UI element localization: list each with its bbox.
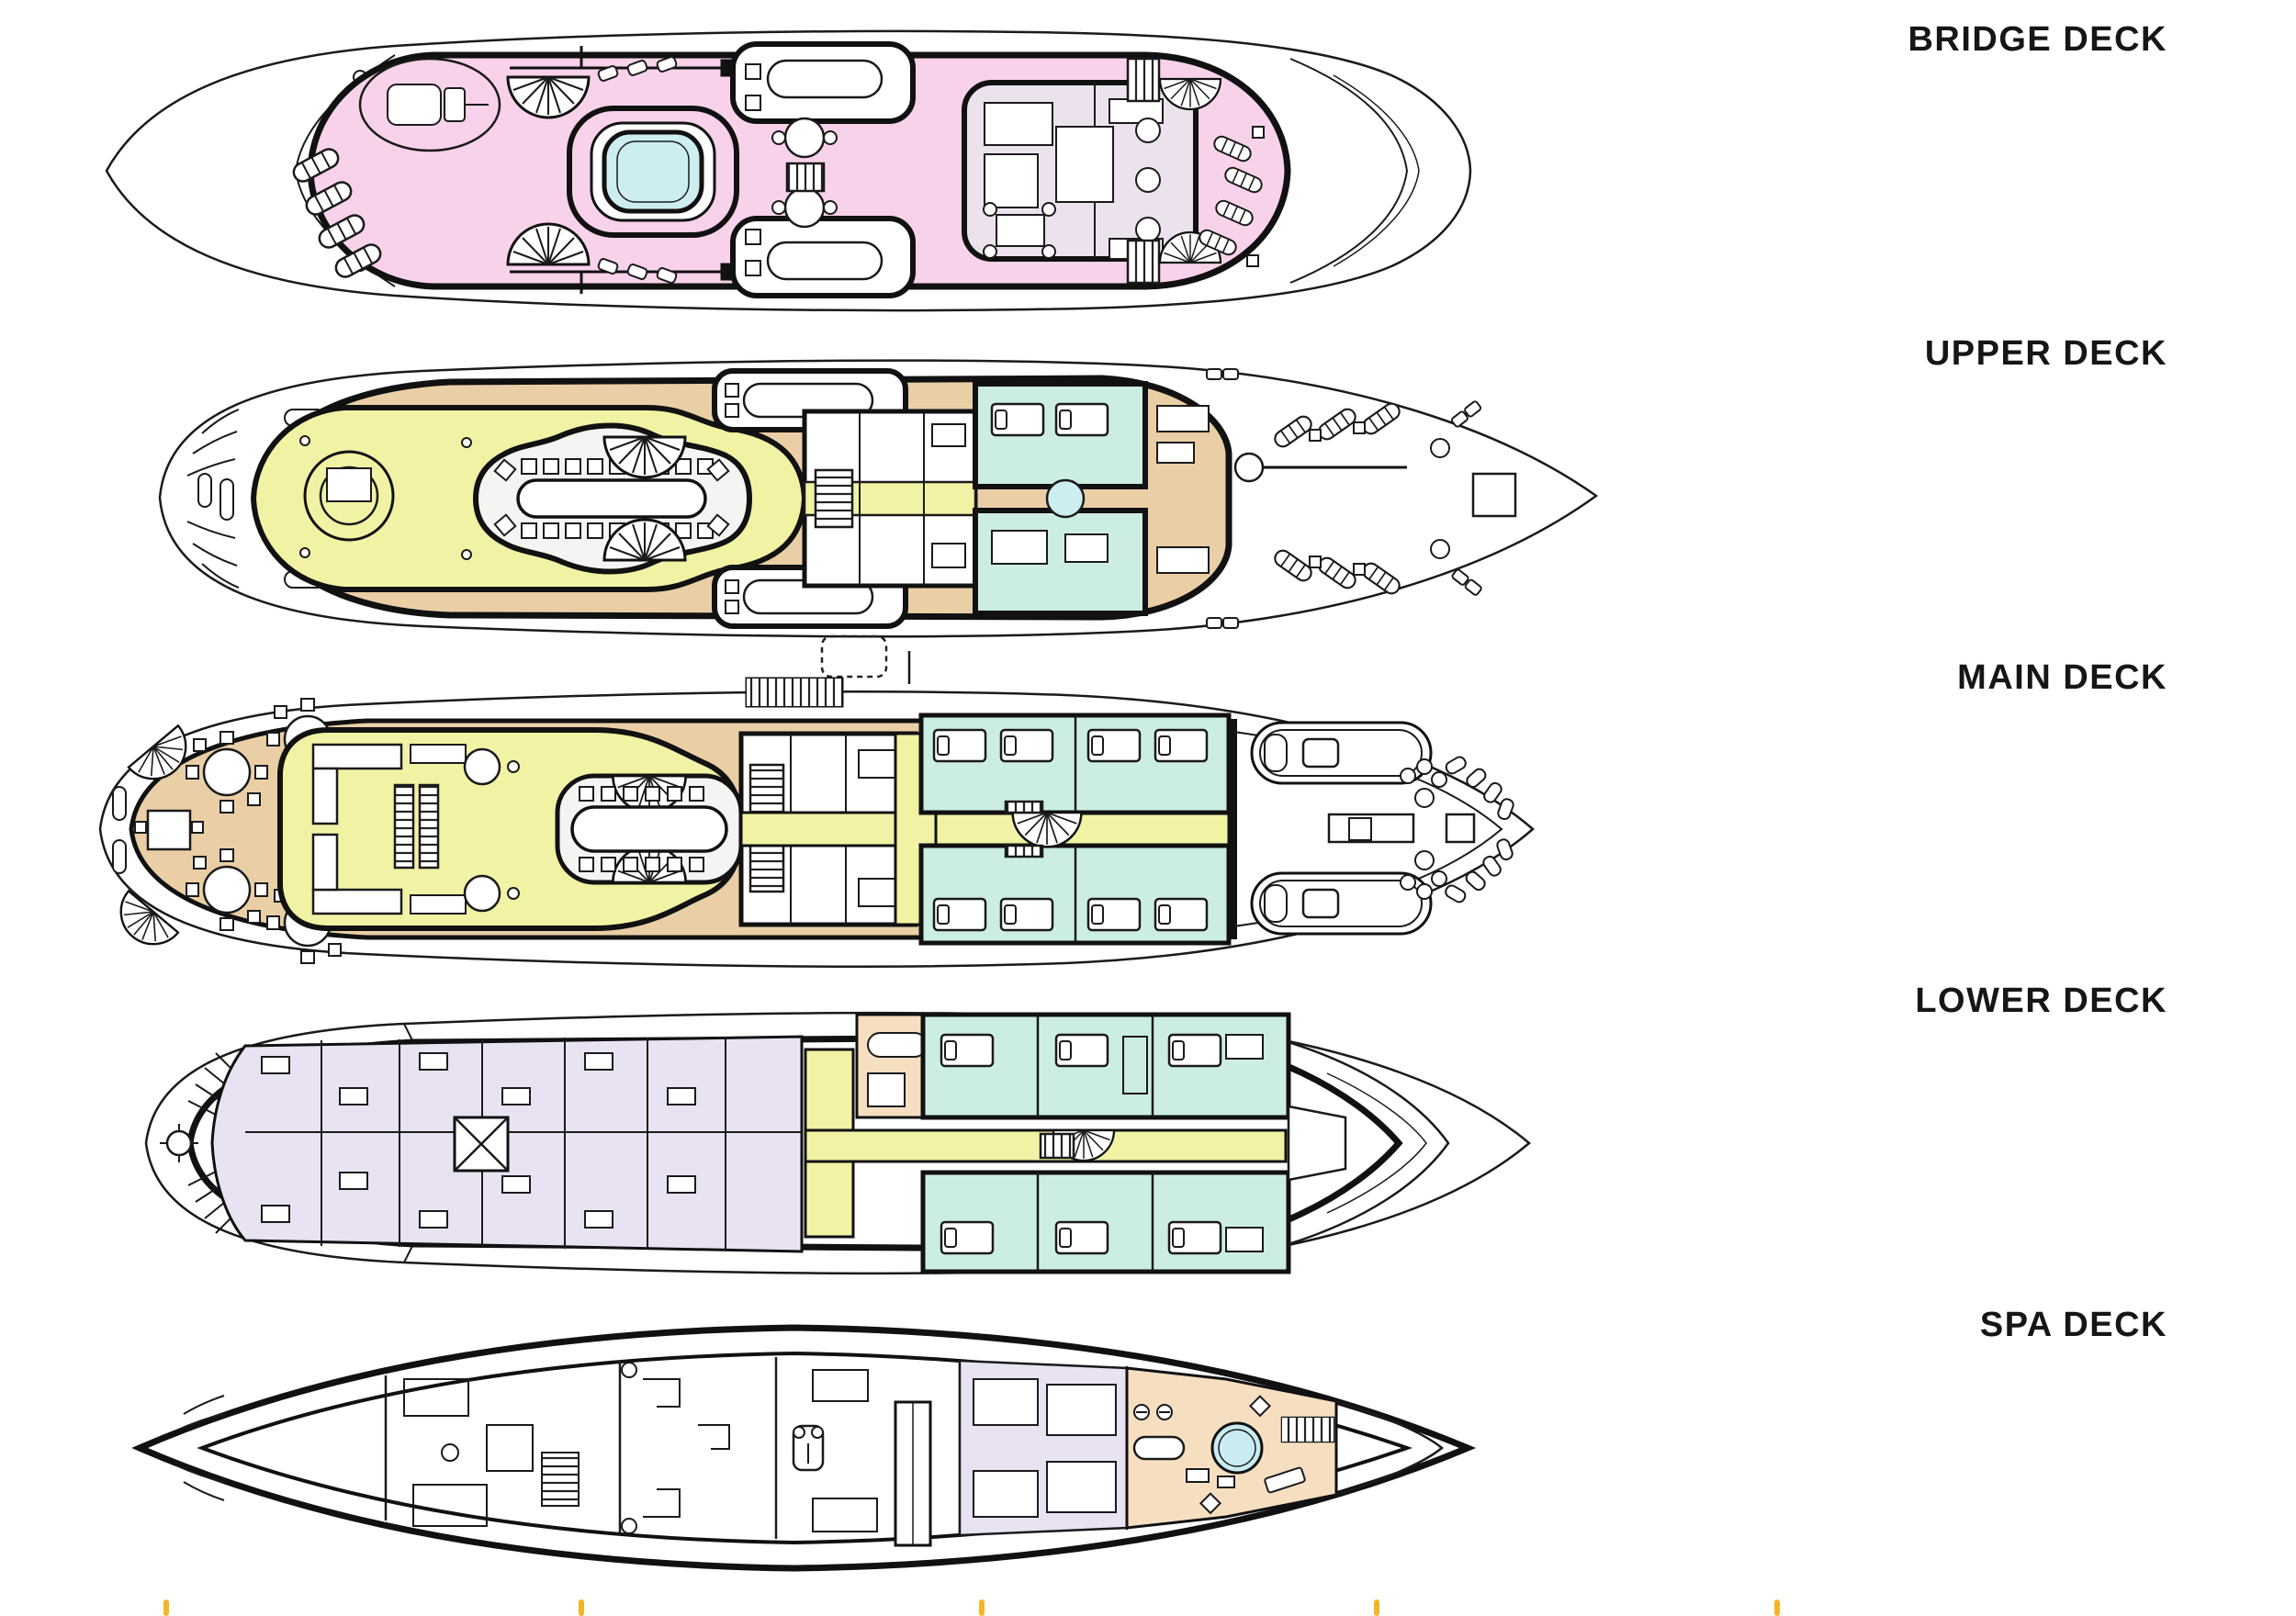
sofa — [1065, 534, 1108, 562]
bridge-deck-plan — [92, 18, 1488, 321]
yacht-deck-plans-page: BRIDGE DECK UPPER DECK MAIN DECK LOWER D… — [0, 0, 2296, 1616]
deck-label-upper: UPPER DECK — [1925, 334, 2167, 374]
deck-label-lower: LOWER DECK — [1915, 982, 2167, 1021]
main-deck-plan — [87, 631, 1557, 980]
deck-label-main: MAIN DECK — [1957, 658, 2167, 698]
upper-deck-plan — [147, 351, 1616, 646]
cabin-bed — [992, 404, 1043, 435]
cabin-bed — [1169, 1222, 1221, 1253]
footer-tick — [1374, 1599, 1379, 1616]
cabin-bed — [1169, 1035, 1221, 1066]
tender-garage-vehicle — [793, 1426, 823, 1470]
sunpad-niche-bottom — [733, 219, 913, 296]
cabin-bed — [941, 1035, 993, 1066]
footer-tick — [979, 1599, 985, 1616]
cabin-bed — [1155, 730, 1207, 761]
stairs — [1128, 241, 1159, 283]
stair-lobby — [805, 411, 975, 586]
funnel-grille — [747, 679, 842, 706]
side-table — [1253, 127, 1264, 138]
cabin-bed — [1001, 899, 1052, 930]
cabin-bed — [1001, 730, 1052, 761]
stairs — [1041, 1134, 1074, 1158]
cleat-pair — [1451, 400, 1482, 428]
deck-label-spa: SPA DECK — [1980, 1306, 2167, 1345]
lower-deck-plan — [133, 996, 1566, 1290]
plunge-pool — [1212, 1423, 1262, 1473]
engine-casing — [895, 1402, 930, 1545]
cabin-bed — [1088, 730, 1140, 761]
cabin-bed — [1056, 1222, 1108, 1253]
cabin-bed — [1056, 1035, 1108, 1066]
cabin-bed — [1088, 899, 1140, 930]
corridor — [741, 813, 1229, 846]
footer-ticks — [156, 1599, 1809, 1616]
deck-label-bridge: BRIDGE DECK — [1908, 20, 2167, 60]
dressing-rooms — [960, 1361, 1127, 1535]
footer-tick — [1774, 1599, 1780, 1616]
stairs — [1128, 59, 1159, 101]
sauna-steps — [1282, 1418, 1334, 1442]
cleat-pair — [1451, 568, 1482, 596]
mast-projection — [822, 636, 886, 677]
sofa — [992, 531, 1047, 564]
sunpad-niche-top — [733, 44, 913, 121]
lift-shaft — [455, 1117, 508, 1171]
footer-tick — [579, 1599, 584, 1616]
chain-locker — [1289, 1106, 1345, 1180]
cabin-bed — [934, 730, 985, 761]
cabin-bed — [1155, 899, 1207, 930]
footer-tick — [163, 1599, 169, 1616]
sky-lounge — [964, 83, 1196, 259]
stool — [1157, 1405, 1172, 1420]
sideboard — [395, 785, 413, 868]
deck-hatch — [1473, 474, 1515, 516]
round-table — [1047, 480, 1084, 517]
side-table — [1247, 255, 1258, 266]
cabin-bed — [1056, 404, 1108, 435]
spa-tub — [1134, 1437, 1184, 1459]
sideboard — [420, 785, 438, 868]
cabin-bed — [941, 1222, 993, 1253]
stool — [1134, 1405, 1149, 1420]
spa-deck-plan — [129, 1315, 1479, 1581]
cabin-bed — [934, 899, 985, 930]
